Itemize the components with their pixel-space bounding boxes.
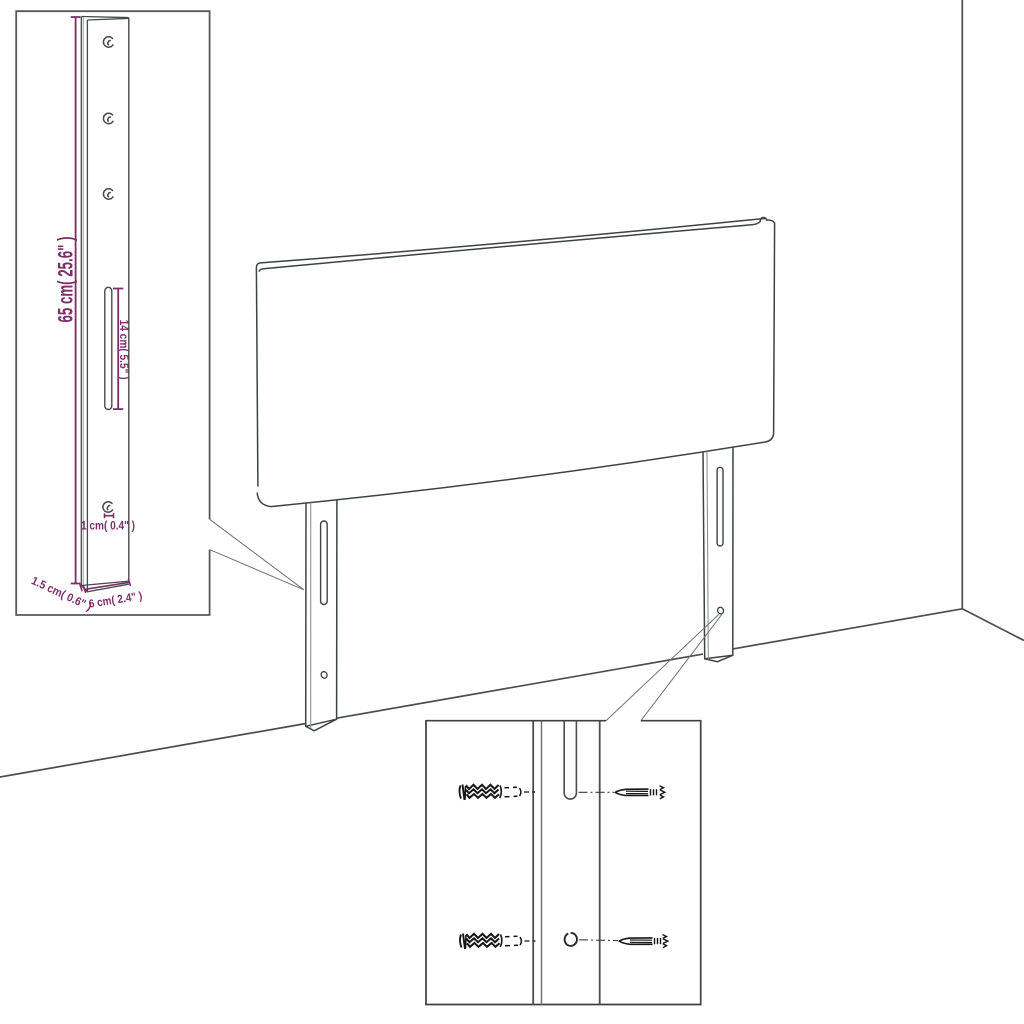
svg-text:1 cm( 0.4" ): 1 cm( 0.4" ) (81, 521, 135, 533)
svg-text:65 cm( 25.6" ): 65 cm( 25.6" ) (55, 237, 78, 323)
svg-text:14 cm( 5.5" ): 14 cm( 5.5" ) (117, 320, 129, 380)
